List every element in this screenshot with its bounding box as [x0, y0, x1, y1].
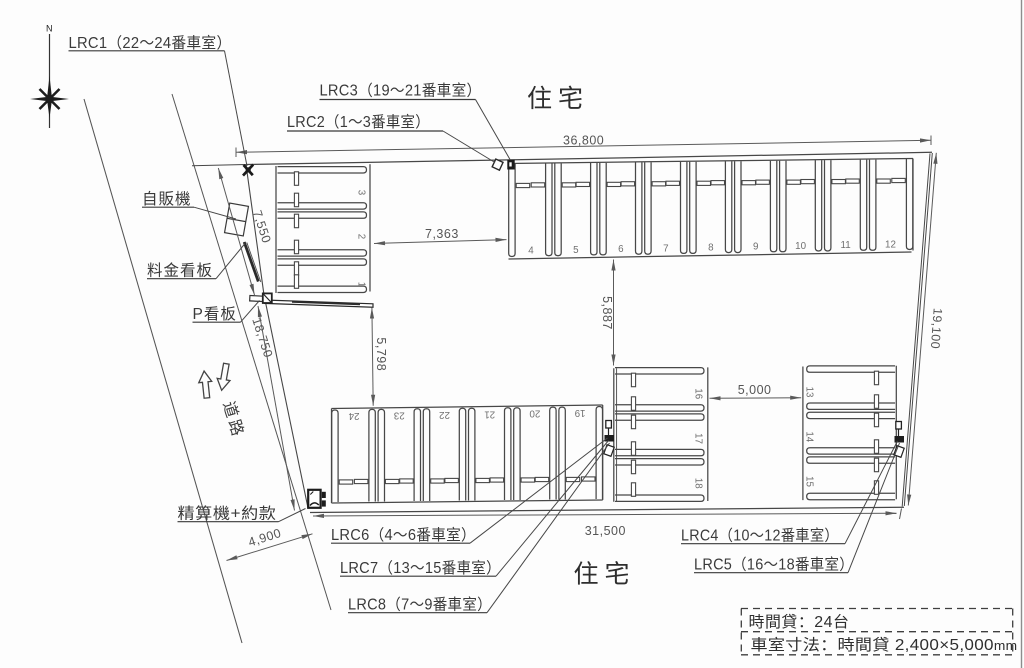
svg-text:15: 15	[804, 476, 815, 487]
svg-text:5,798: 5,798	[374, 337, 388, 371]
svg-text:31,500: 31,500	[585, 524, 626, 538]
svg-text:8: 8	[708, 243, 714, 254]
svg-text:N: N	[46, 24, 53, 34]
svg-text:16: 16	[693, 388, 704, 399]
svg-text:10: 10	[795, 241, 806, 252]
svg-text:12: 12	[885, 239, 896, 250]
svg-text:7,363: 7,363	[425, 227, 459, 241]
svg-text:19,100: 19,100	[928, 308, 945, 350]
svg-text:LRC6（4～6番車室）: LRC6（4～6番車室）	[331, 526, 476, 544]
svg-text:18: 18	[693, 478, 704, 489]
svg-text:14: 14	[804, 431, 815, 442]
svg-text:6: 6	[618, 244, 624, 255]
svg-text:1: 1	[356, 282, 367, 287]
svg-text:料金看板: 料金看板	[147, 262, 213, 280]
svg-text:5: 5	[573, 245, 579, 256]
svg-text:車室寸法：時間貸 2,400×5,000mm: 車室寸法：時間貸 2,400×5,000mm	[751, 636, 1018, 654]
svg-text:住宅: 住宅	[527, 85, 589, 113]
svg-text:LRC8（7～9番車室）: LRC8（7～9番車室）	[348, 596, 492, 614]
svg-text:P看板: P看板	[193, 305, 237, 323]
svg-text:23: 23	[393, 409, 404, 420]
svg-text:LRC7（13～15番車室）: LRC7（13～15番車室）	[340, 559, 501, 577]
svg-text:LRC2（1～3番車室）: LRC2（1～3番車室）	[287, 113, 430, 131]
svg-text:11: 11	[841, 240, 851, 251]
svg-text:13: 13	[804, 387, 815, 398]
svg-text:5,000: 5,000	[738, 383, 772, 397]
svg-text:精算機+約款: 精算機+約款	[178, 504, 277, 523]
svg-text:9: 9	[753, 242, 758, 253]
svg-text:7: 7	[663, 243, 668, 254]
svg-text:3: 3	[356, 190, 367, 196]
svg-text:19: 19	[575, 407, 586, 418]
svg-text:22: 22	[439, 409, 450, 420]
svg-text:時間貸：24台: 時間貸：24台	[749, 613, 850, 631]
svg-text:LRC1（22～24番車室）: LRC1（22～24番車室）	[69, 34, 232, 52]
svg-text:LRC5（16～18番車室）: LRC5（16～18番車室）	[694, 556, 854, 574]
svg-text:2: 2	[356, 234, 367, 239]
svg-text:住宅: 住宅	[574, 561, 636, 589]
svg-text:LRC3（19～21番車室）: LRC3（19～21番車室）	[320, 82, 482, 100]
svg-text:20: 20	[529, 408, 540, 419]
svg-text:17: 17	[693, 433, 704, 444]
svg-text:LRC4（10～12番車室）: LRC4（10～12番車室）	[681, 527, 839, 545]
svg-text:自販機: 自販機	[142, 190, 192, 208]
svg-text:24: 24	[348, 410, 359, 421]
svg-text:4: 4	[528, 246, 534, 257]
svg-text:36,800: 36,800	[563, 133, 604, 147]
svg-text:5,887: 5,887	[600, 296, 614, 330]
svg-text:21: 21	[484, 408, 495, 419]
